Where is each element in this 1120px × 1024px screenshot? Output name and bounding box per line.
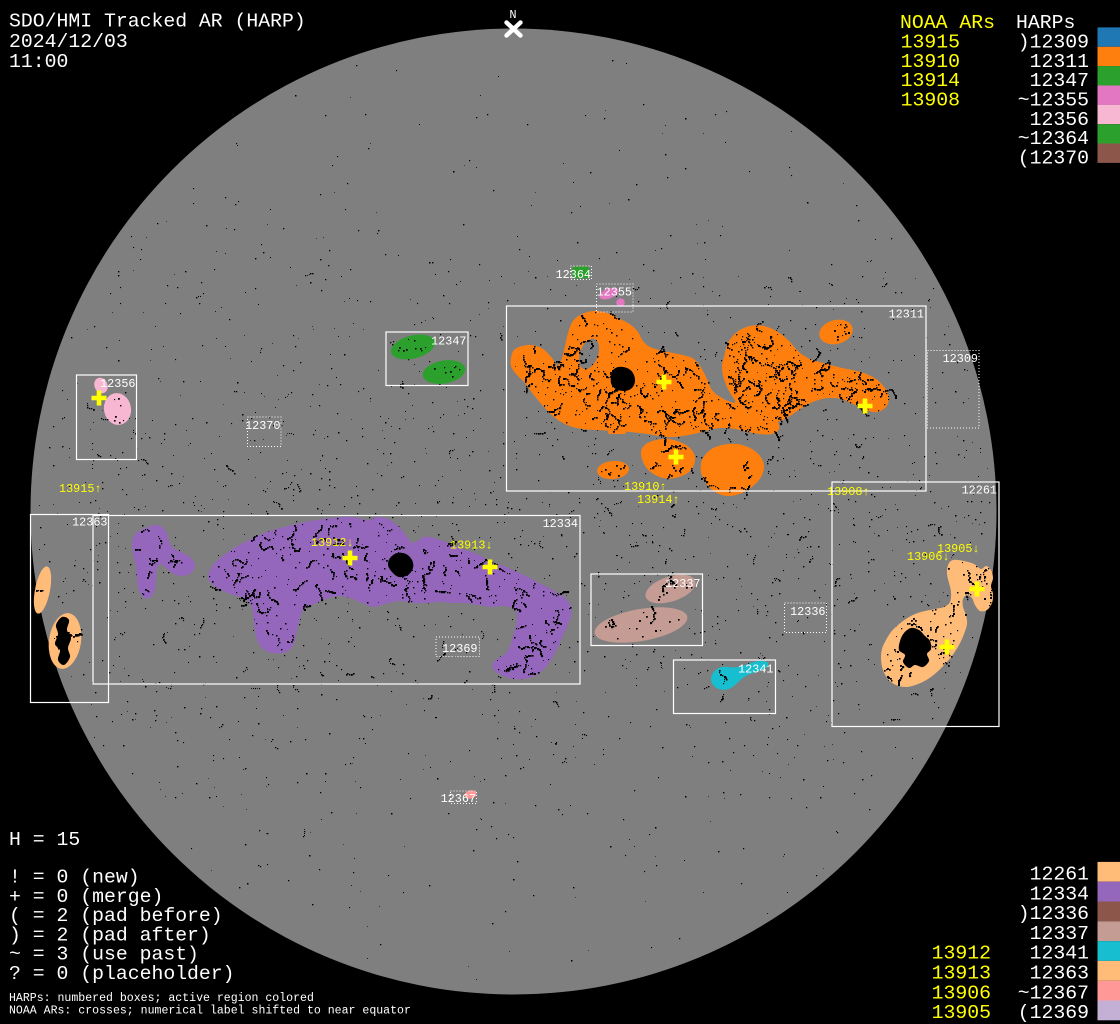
svg-text:13915↑: 13915↑ [59,482,101,496]
svg-text:12364: 12364 [556,268,591,282]
svg-text:12367: 12367 [441,792,476,806]
svg-text:13914↑: 13914↑ [637,493,679,507]
svg-text:13908↑: 13908↑ [827,485,869,499]
svg-text:12336: 12336 [790,605,825,619]
svg-text:)12336: )12336 [1018,903,1089,925]
svg-text:(12370: (12370 [1018,148,1089,170]
svg-text:(12369: (12369 [1018,1002,1089,1024]
svg-text:12355: 12355 [597,286,632,300]
svg-text:12334: 12334 [543,517,578,531]
svg-text:NOAA ARs: crosses; numerical l: NOAA ARs: crosses; numerical label shift… [9,1005,411,1018]
svg-text:13908: 13908 [901,90,960,112]
svg-text:11:00: 11:00 [9,51,68,73]
svg-text:12309: 12309 [943,352,978,366]
svg-text:13913↓: 13913↓ [450,539,492,553]
svg-text:13910↑: 13910↑ [624,480,666,494]
svg-text:12334: 12334 [1018,883,1089,905]
svg-text:? = 0 (placeholder): ? = 0 (placeholder) [9,963,235,985]
svg-text:13906↓: 13906↓ [907,550,949,564]
svg-text:12341: 12341 [1018,943,1089,965]
svg-text:12363: 12363 [72,516,107,530]
svg-text:HARPs: numbered boxes; active: HARPs: numbered boxes; active region col… [9,992,314,1005]
svg-text:12347: 12347 [431,335,466,349]
svg-text:~12367: ~12367 [1018,982,1089,1004]
svg-text:12341: 12341 [738,663,773,677]
svg-text:2024/12/03: 2024/12/03 [9,31,128,53]
svg-text:13906: 13906 [932,982,991,1004]
svg-text:12370: 12370 [245,419,280,433]
svg-text:12356: 12356 [100,377,135,391]
svg-text:H = 15: H = 15 [9,829,80,851]
svg-text:12261: 12261 [1018,864,1089,886]
svg-text:13912: 13912 [932,943,991,965]
svg-text:12337: 12337 [665,577,700,591]
svg-text:12311: 12311 [889,308,924,322]
svg-text:13912↓: 13912↓ [311,536,353,550]
svg-text:12363: 12363 [1018,963,1089,985]
svg-text:13905: 13905 [932,1002,991,1024]
svg-text:12261: 12261 [962,484,997,498]
svg-text:12337: 12337 [1018,923,1089,945]
svg-text:13913: 13913 [932,963,991,985]
svg-text:N: N [509,8,516,22]
svg-text:SDO/HMI Tracked AR (HARP): SDO/HMI Tracked AR (HARP) [9,11,306,33]
svg-text:12369: 12369 [442,642,477,656]
